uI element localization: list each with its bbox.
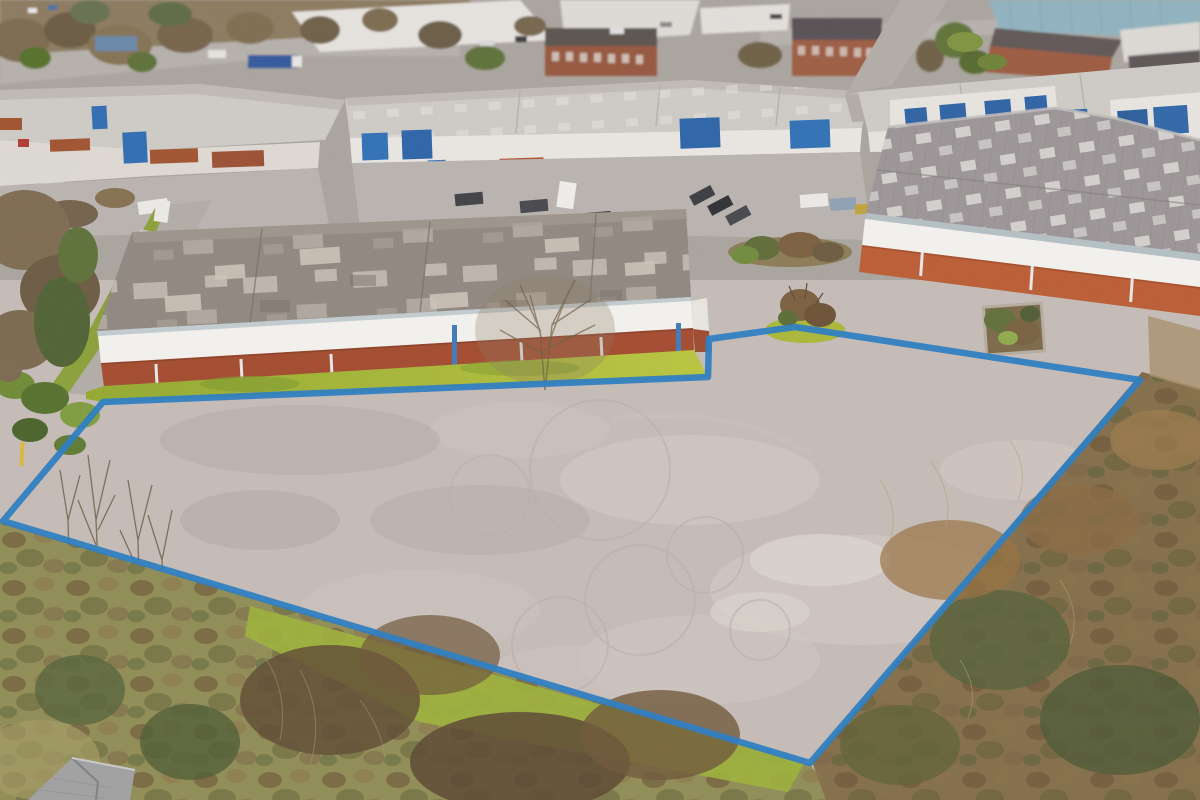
photo-grain-overlay — [0, 0, 1200, 800]
aerial-photo-canvas — [0, 0, 1200, 800]
aerial-photo — [0, 0, 1200, 800]
